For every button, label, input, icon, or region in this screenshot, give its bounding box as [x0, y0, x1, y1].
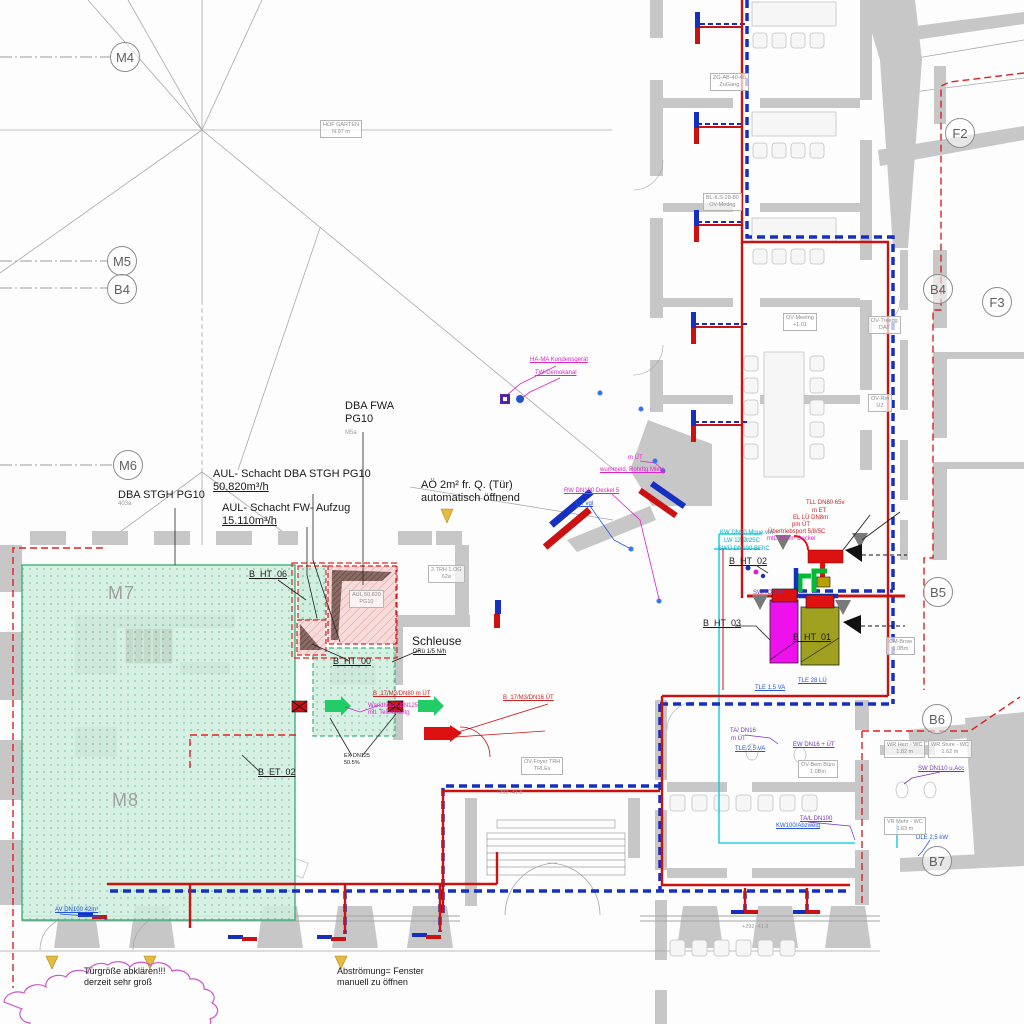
note-b17-dn80: B_17/M3/DN80 m ÜT: [373, 691, 430, 698]
grid-bubble-b7: B7: [922, 846, 952, 876]
floorplan-canvas: M4 M5 B4 M6 F2 B4 F3 B5 B6 B7 M7 M8 DBA …: [0, 0, 1024, 1024]
khaki-box: [817, 577, 830, 587]
label-ao-tuer: AÖ 2m² fr. Q. (Tür)automatisch öffnend: [421, 479, 520, 505]
room-box-ov-rm: OV-RmÜZ: [868, 394, 892, 412]
note-swa-dn16: SWA DN16: [753, 590, 783, 597]
grid-bubble-f3: F3: [982, 287, 1012, 317]
note-kw-dn50: KW DN50 Mque vm: [720, 530, 773, 537]
grid-text-m7: M7: [108, 583, 135, 604]
label-b-et-02: B_ET_02: [258, 767, 296, 778]
note-kw100: KW100/Abzweig: [776, 823, 820, 830]
grid-bubble-b5: B5: [923, 577, 953, 607]
label-b-ht-01: B_HT_01: [793, 632, 831, 643]
grid-bubble-m6: M6: [113, 450, 143, 480]
note-sw-dn110: SW DN110 u.Acc: [918, 766, 964, 773]
red-supply-duct: [424, 727, 450, 740]
room-box-wc-mehr: VR Mehr - WC1.63 m: [884, 817, 926, 835]
room-box-foyer: OV-Foyer TRHTRLEx: [521, 757, 563, 775]
label-dba-fwa-sub: M5a: [345, 430, 357, 437]
label-b-ht-02: B_HT_02: [729, 556, 767, 567]
room-box-wc-herr: WR Herr - WC1.82 m: [884, 740, 925, 758]
note-m-uet-2: m ÜT: [628, 455, 643, 462]
room-box-ov-meetng: OV-Meetng+1.01: [783, 313, 817, 331]
grid-bubble-b4-left: B4: [107, 274, 137, 304]
note-b17-dn16: B_17/M3/DN16 ÜT: [503, 695, 554, 702]
room-box-aul-shaft: AUL 50.820PG10: [349, 590, 384, 608]
note-ta-dn16: TA/ DN16: [730, 728, 756, 735]
label-tuergroesse: Türgröße abklären!!!derzeit sehr groß: [84, 966, 166, 988]
label-dba-fwa: DBA FWAPG10: [345, 400, 394, 426]
room-box-cm-brow: CM-Brow1.0Bm: [886, 637, 915, 655]
equipment-cluster: [746, 533, 908, 665]
note-tal-dn100: TA/L DN100: [800, 816, 832, 823]
red-duct-box: [808, 550, 843, 563]
note-uet-vgl: ÜT vgl: [576, 501, 593, 508]
note-tle-25: TLE 2,5 VA: [735, 746, 765, 753]
note-rw-dn100: RW DN100 Deckel 5: [564, 488, 619, 495]
note-lw12: LW 12 Ø/25C: [724, 538, 760, 545]
note-ew-dn16: EW DN16 + ÜT: [793, 742, 835, 749]
label-schleuse-sub: DRü 1/5 N/h: [413, 649, 446, 656]
grid-text-m8: M8: [112, 790, 139, 811]
shaft-green-strip: [298, 566, 326, 620]
room-box-ov-treedg: OV-TreedgDAT: [868, 316, 901, 334]
label-b-ht-03: B_HT_03: [703, 618, 741, 629]
room-box-ov-medng: BL-ILS-28-80OV-Medng: [703, 193, 742, 211]
room-box-zugang: ZG-AB-40-40ZuGang: [710, 73, 749, 91]
label-ex-dn125: EX DN12550.5%: [344, 753, 370, 766]
floorplan-linework: [0, 0, 1024, 1024]
grid-bubble-m4: M4: [110, 42, 140, 72]
note-telefonleitg: mtl. Telefonleitg: [368, 710, 410, 717]
grid-bubble-m5: M5: [107, 246, 137, 276]
note-level-2: +292 -41.8: [742, 924, 768, 931]
label-abstroemung: Abströmung= Fenstermanuell zu öffnen: [337, 966, 424, 988]
room-box-ov-bem: OV-Bem Büro1.0Bm: [798, 760, 838, 778]
black-arrows-left: [843, 544, 907, 634]
label-aul-schacht-fw: AUL- Schacht FW- Aufzug15.110m³/h: [222, 502, 350, 528]
note-level-1: +292 -41.8: [496, 790, 522, 797]
note-wummeld: wummeld. Rohrltg Miete: [600, 467, 665, 474]
room-box-trh: 2.TRH 1.OG62a: [428, 565, 465, 583]
label-dba-stgh-sub: 403a: [118, 501, 131, 508]
note-tw-demokanal: TW-Demokanal: [535, 370, 577, 377]
label-schleuse: Schleuse: [412, 634, 461, 648]
note-tll-dn80: TLL DN80 65v: [806, 500, 844, 507]
note-m-uet-3: m ÜT: [731, 736, 746, 743]
note-av-dn100: AV DN100 42m³: [55, 907, 98, 914]
label-aul-schacht-dba: AUL- Schacht DBA STGH PG1050.820m³/h: [213, 468, 371, 494]
note-kondensgeraet: HA-MA Kondensgerät: [530, 357, 588, 364]
room-box-hof-garten: HOF GARTENN.97 m: [320, 120, 362, 138]
note-swue-dn100: SWÜ DN100 BEhC: [718, 546, 770, 553]
label-b-ht-00: B_HT_00: [333, 656, 371, 667]
grid-bubble-b6: B6: [922, 704, 952, 734]
grid-bubble-b4-right: B4: [923, 274, 953, 304]
note-mtl-deckel: mtL 100m² Deckel: [767, 536, 815, 543]
note-tle-15: TLE 1,5 VA: [755, 685, 785, 692]
grid-axis-lines: [0, 57, 113, 465]
grid-bubble-f2: F2: [945, 118, 975, 148]
note-tle-28: TLE 28 LÜ: [798, 678, 827, 685]
note-dle: DLE 2,5 kW: [916, 835, 948, 842]
room-box-wc-sture: WR Sture - WC1.62 m: [928, 740, 972, 758]
label-b-ht-06: B_HT_06: [249, 569, 287, 580]
